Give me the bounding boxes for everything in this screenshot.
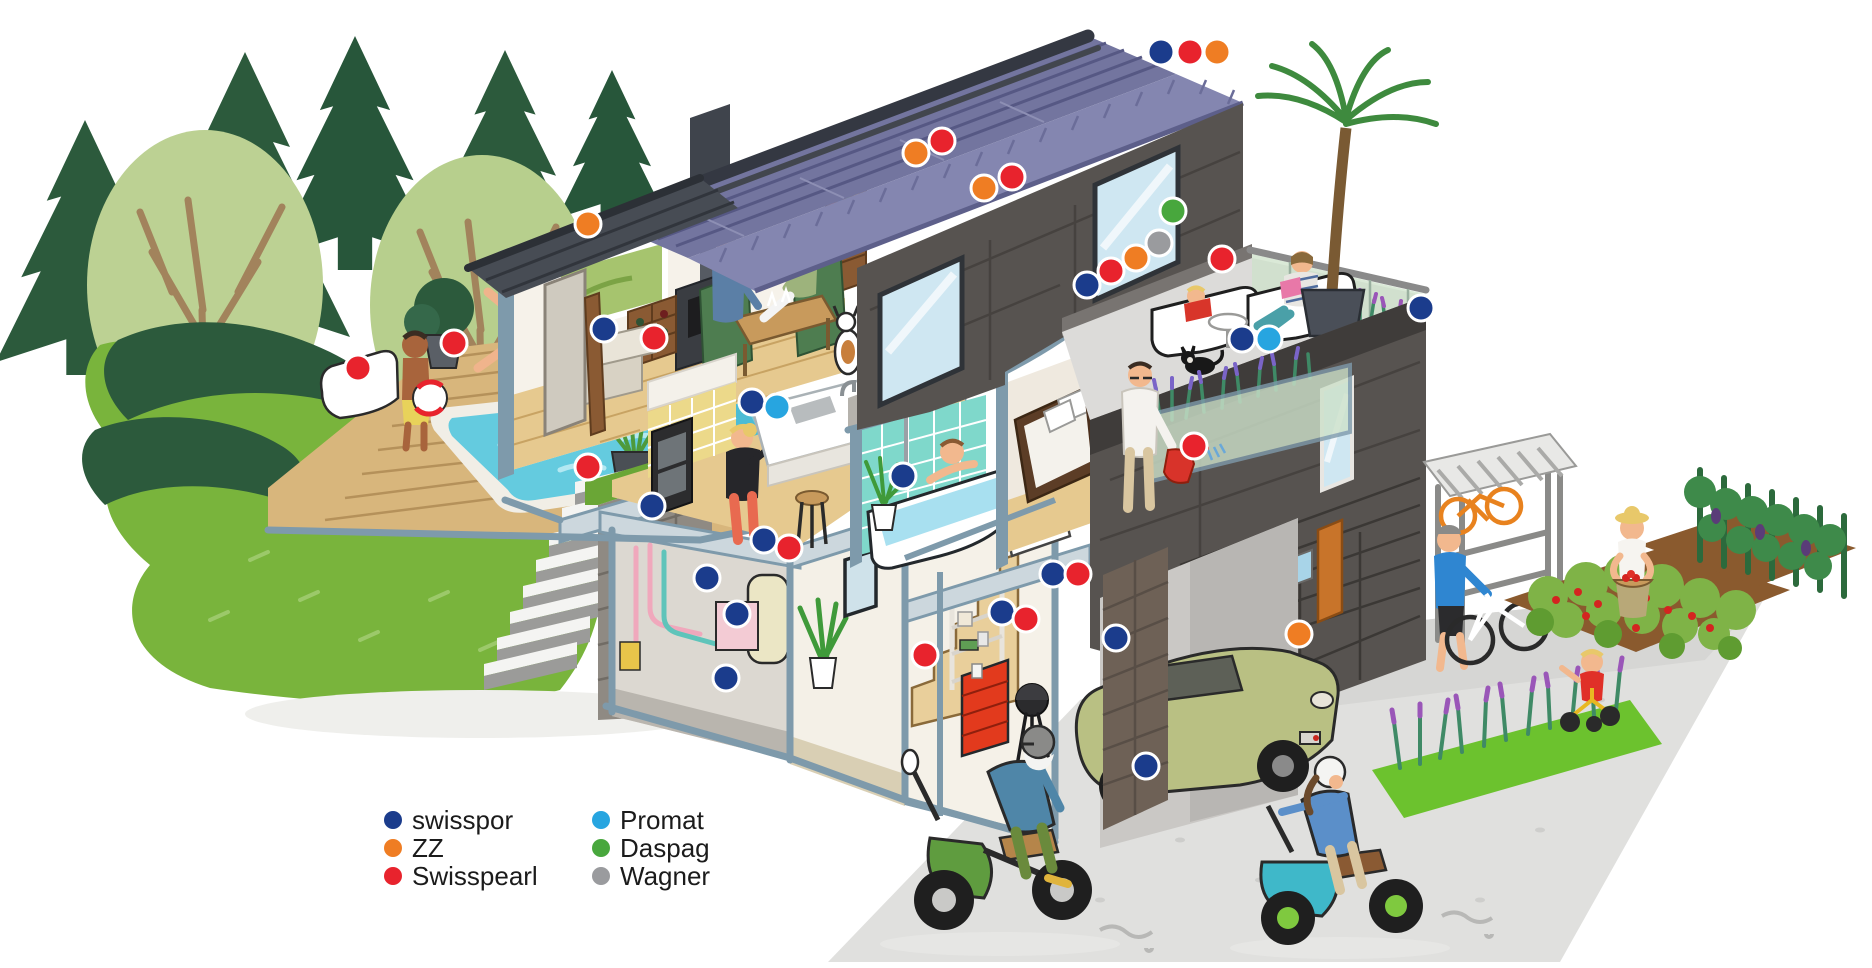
marker-promat-kitchen-island[interactable] [763,393,792,422]
marker-swisspearl-pool-planter[interactable] [440,329,469,358]
marker-swisspor-basement-ceiling-edge[interactable] [638,492,667,521]
legend-dot-swisspearl [384,867,402,885]
marker-swisspearl-pool-deck-planter[interactable] [574,453,603,482]
legend-label: ZZ [412,834,444,862]
marker-zz-roof-terrace[interactable] [1122,244,1151,273]
marker-swisspearl-hobby-room-ceiling[interactable] [1064,560,1093,589]
marker-zz[interactable] [1203,38,1232,67]
marker-zz-entrance-canopy-roof[interactable] [574,210,603,239]
infographic-stage: swissporZZSwisspearl PromatDaspagWagner [0,0,1872,968]
marker-swisspor-living-room-cut-wall[interactable] [590,315,619,344]
legend-item-swisspor: swisspor [384,806,592,834]
marker-swisspearl-wine-rack[interactable] [640,324,669,353]
marker-swisspearl-boiler-room-ceiling[interactable] [775,534,804,563]
legend-dot-zz [384,839,402,857]
marker-swisspearl-basement-stairs[interactable] [911,641,940,670]
legend-dot-promat [592,811,610,829]
legend-column: swissporZZSwisspearl [384,806,592,890]
marker-promat-terrace-floor[interactable] [1255,325,1284,354]
legend-label: Wagner [620,862,710,890]
marker-swisspor-boiler[interactable] [723,600,752,629]
marker-swisspearl-balcony-planter[interactable] [1180,432,1209,461]
marker-zz-facade-siding[interactable] [970,174,999,203]
legend-item-swisspearl: Swisspearl [384,862,592,890]
marker-swisspearl-garage-shelf[interactable] [1012,605,1041,634]
marker-swisspor-boiler-room-wall[interactable] [693,564,722,593]
legend-dot-daspag [592,839,610,857]
legend-dot-wagner [592,867,610,885]
marker-swisspor-garage-column-base[interactable] [1132,752,1161,781]
marker-swisspor-bathroom-tiles[interactable] [889,462,918,491]
marker-swisspor[interactable] [1147,38,1176,67]
legend-label: swisspor [412,806,513,834]
marker-zz-garage-brick-wall[interactable] [1285,620,1314,649]
marker-swisspearl-pool-lounger[interactable] [344,354,373,383]
marker-swisspor-terrace-floor[interactable] [1228,325,1257,354]
legend-item-wagner: Wagner [592,862,710,890]
marker-swisspor-glass-railing[interactable] [1407,294,1436,323]
legend: swissporZZSwisspearl PromatDaspagWagner [384,806,710,890]
marker-zz-solar-roof[interactable] [902,139,931,168]
legend-label: Promat [620,806,704,834]
marker-layer [0,0,1872,968]
legend-item-daspag: Daspag [592,834,710,862]
marker-swisspor-basement-floor[interactable] [712,664,741,693]
marker-swisspor-roof-terrace[interactable] [1073,271,1102,300]
legend-dot-swisspor [384,811,402,829]
legend-item-zz: ZZ [384,834,592,862]
marker-swisspor-garage-column[interactable] [1102,624,1131,653]
legend-label: Swisspearl [412,862,538,890]
marker-swisspearl-terrace-lounger[interactable] [1208,245,1237,274]
legend-column: PromatDaspagWagner [592,806,710,890]
marker-swisspearl-facade-siding[interactable] [998,163,1027,192]
marker-daspag-upper-facade[interactable] [1159,197,1188,226]
marker-swisspearl-solar-roof[interactable] [928,127,957,156]
legend-item-promat: Promat [592,806,710,834]
marker-swisspearl[interactable] [1176,38,1205,67]
legend-label: Daspag [620,834,710,862]
